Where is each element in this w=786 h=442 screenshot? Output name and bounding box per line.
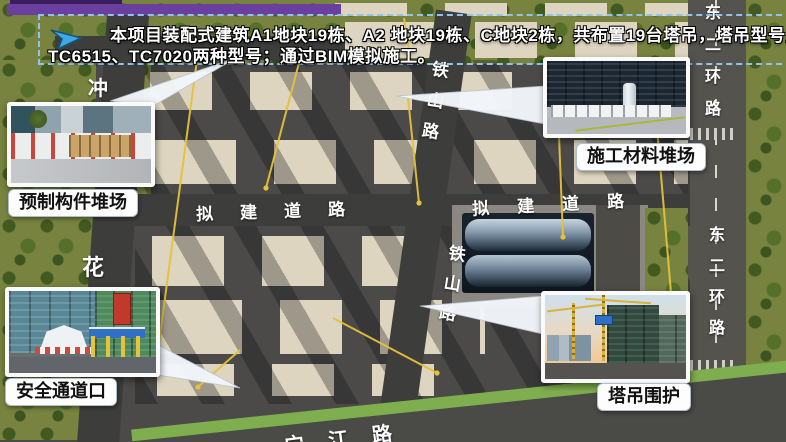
- safety-barriers: [35, 347, 93, 354]
- callout-label-crane-enclosure: 塔吊围护: [597, 383, 691, 411]
- inset-image-material-yard: [543, 57, 690, 138]
- crane-ground: [545, 363, 686, 379]
- callout-wedge-crane-enclosure: [420, 296, 543, 334]
- crane-building-main: [607, 305, 659, 363]
- callout-label-material-yard: 施工材料堆场: [576, 143, 706, 171]
- crane-mast-1: [572, 303, 575, 359]
- callout-wedge-safety-passage: [158, 345, 240, 388]
- material-silo: [623, 83, 636, 107]
- crane-building-right: [657, 315, 686, 363]
- crane-far-buildings: [547, 335, 591, 361]
- material-towers: [547, 61, 686, 107]
- banner-line-2: TC6515、TC7020两种型号；通过BIM模拟施工。: [48, 42, 435, 67]
- precast-tree: [29, 110, 47, 128]
- inset-image-safety-passage: [5, 287, 160, 377]
- inset-image-precast-yard: [7, 102, 155, 187]
- safety-canopy: [89, 327, 145, 361]
- crane-cab: [595, 315, 613, 325]
- callout-label-precast-yard: 预制构件堆场: [8, 189, 138, 217]
- precast-ground: [11, 159, 151, 183]
- safety-hoist: [113, 293, 131, 325]
- callout-wedge-material-yard: [396, 86, 545, 124]
- slide-canvas: 铁山路 铁山路 拟建道路 拟建道路 东二环路 东二环路 花 冲 宁江路: [0, 0, 786, 442]
- safety-ground: [9, 357, 156, 373]
- inset-image-crane-enclosure: [541, 291, 690, 383]
- callout-label-safety-passage: 安全通道口: [5, 378, 117, 406]
- precast-racks: [69, 135, 131, 157]
- material-fence: [551, 105, 671, 117]
